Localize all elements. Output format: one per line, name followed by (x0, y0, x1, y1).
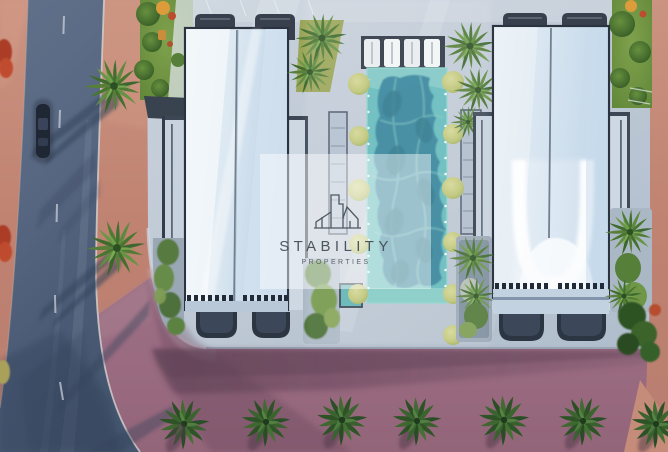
svg-text:PROPERTIES: PROPERTIES (302, 259, 371, 266)
svg-text:STABILITY: STABILITY (279, 238, 393, 255)
